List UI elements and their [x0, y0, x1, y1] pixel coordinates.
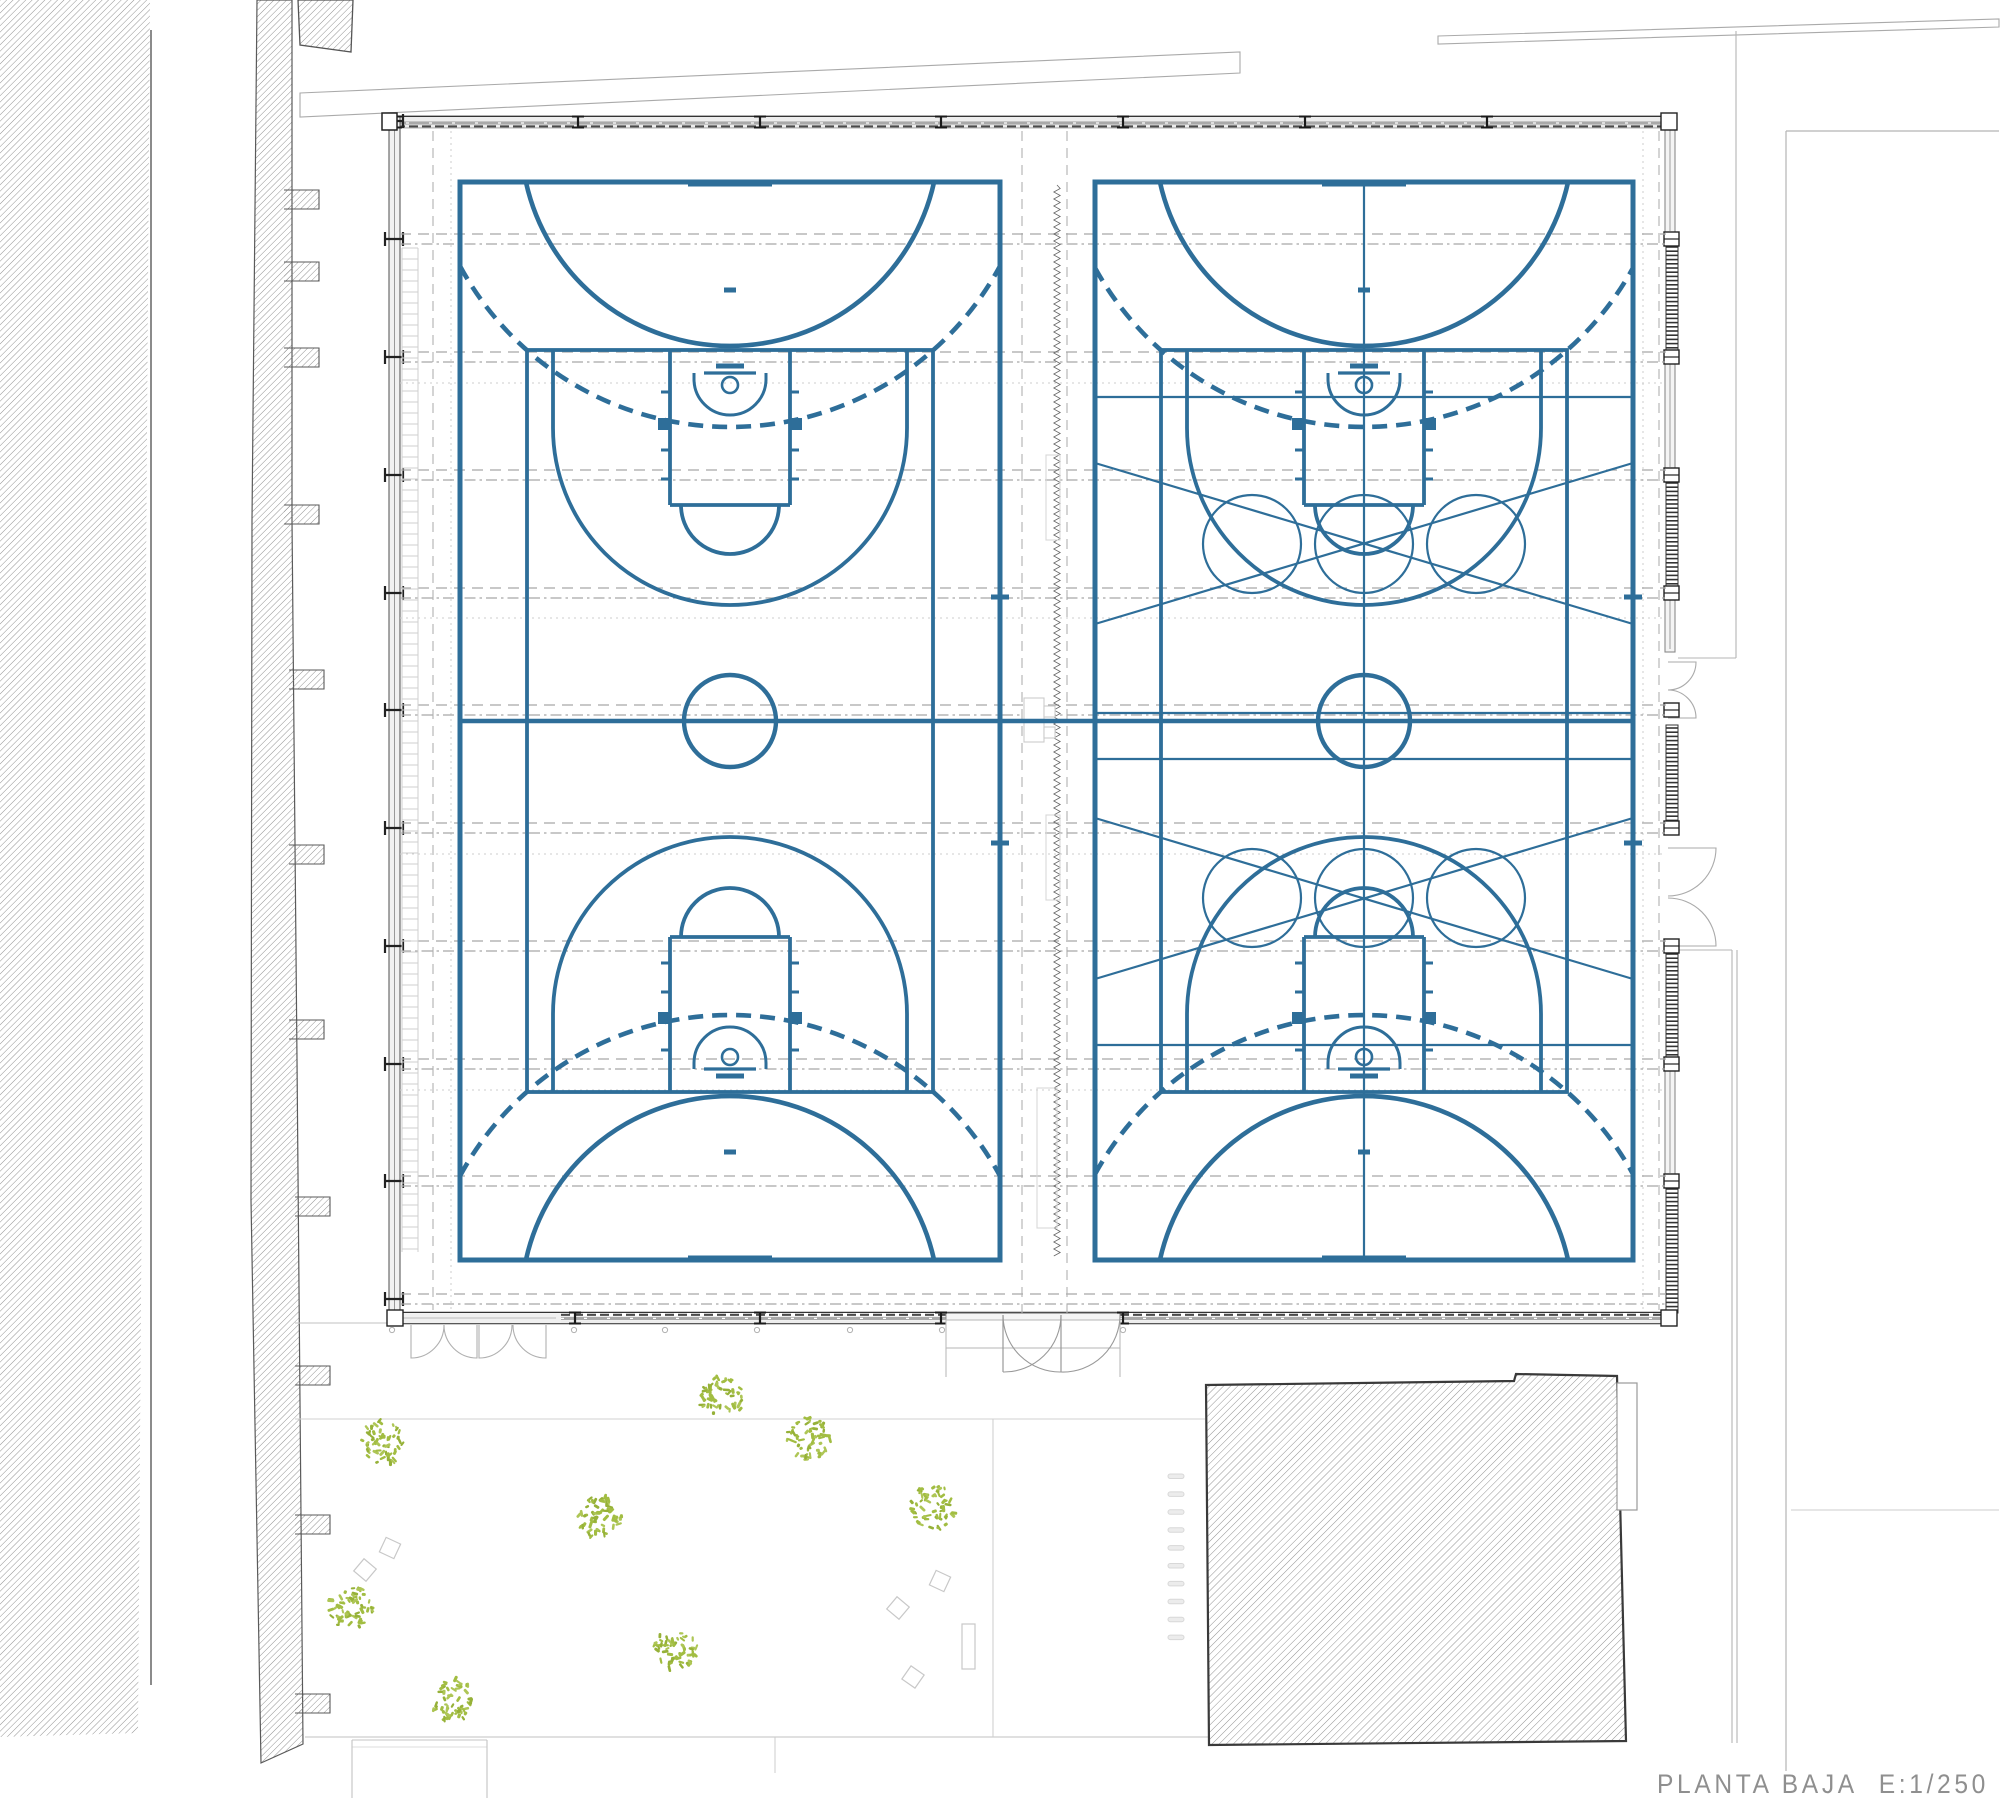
svg-text:PLANTA BAJA E:1/250: PLANTA BAJA E:1/250 — [1657, 1769, 1989, 1798]
